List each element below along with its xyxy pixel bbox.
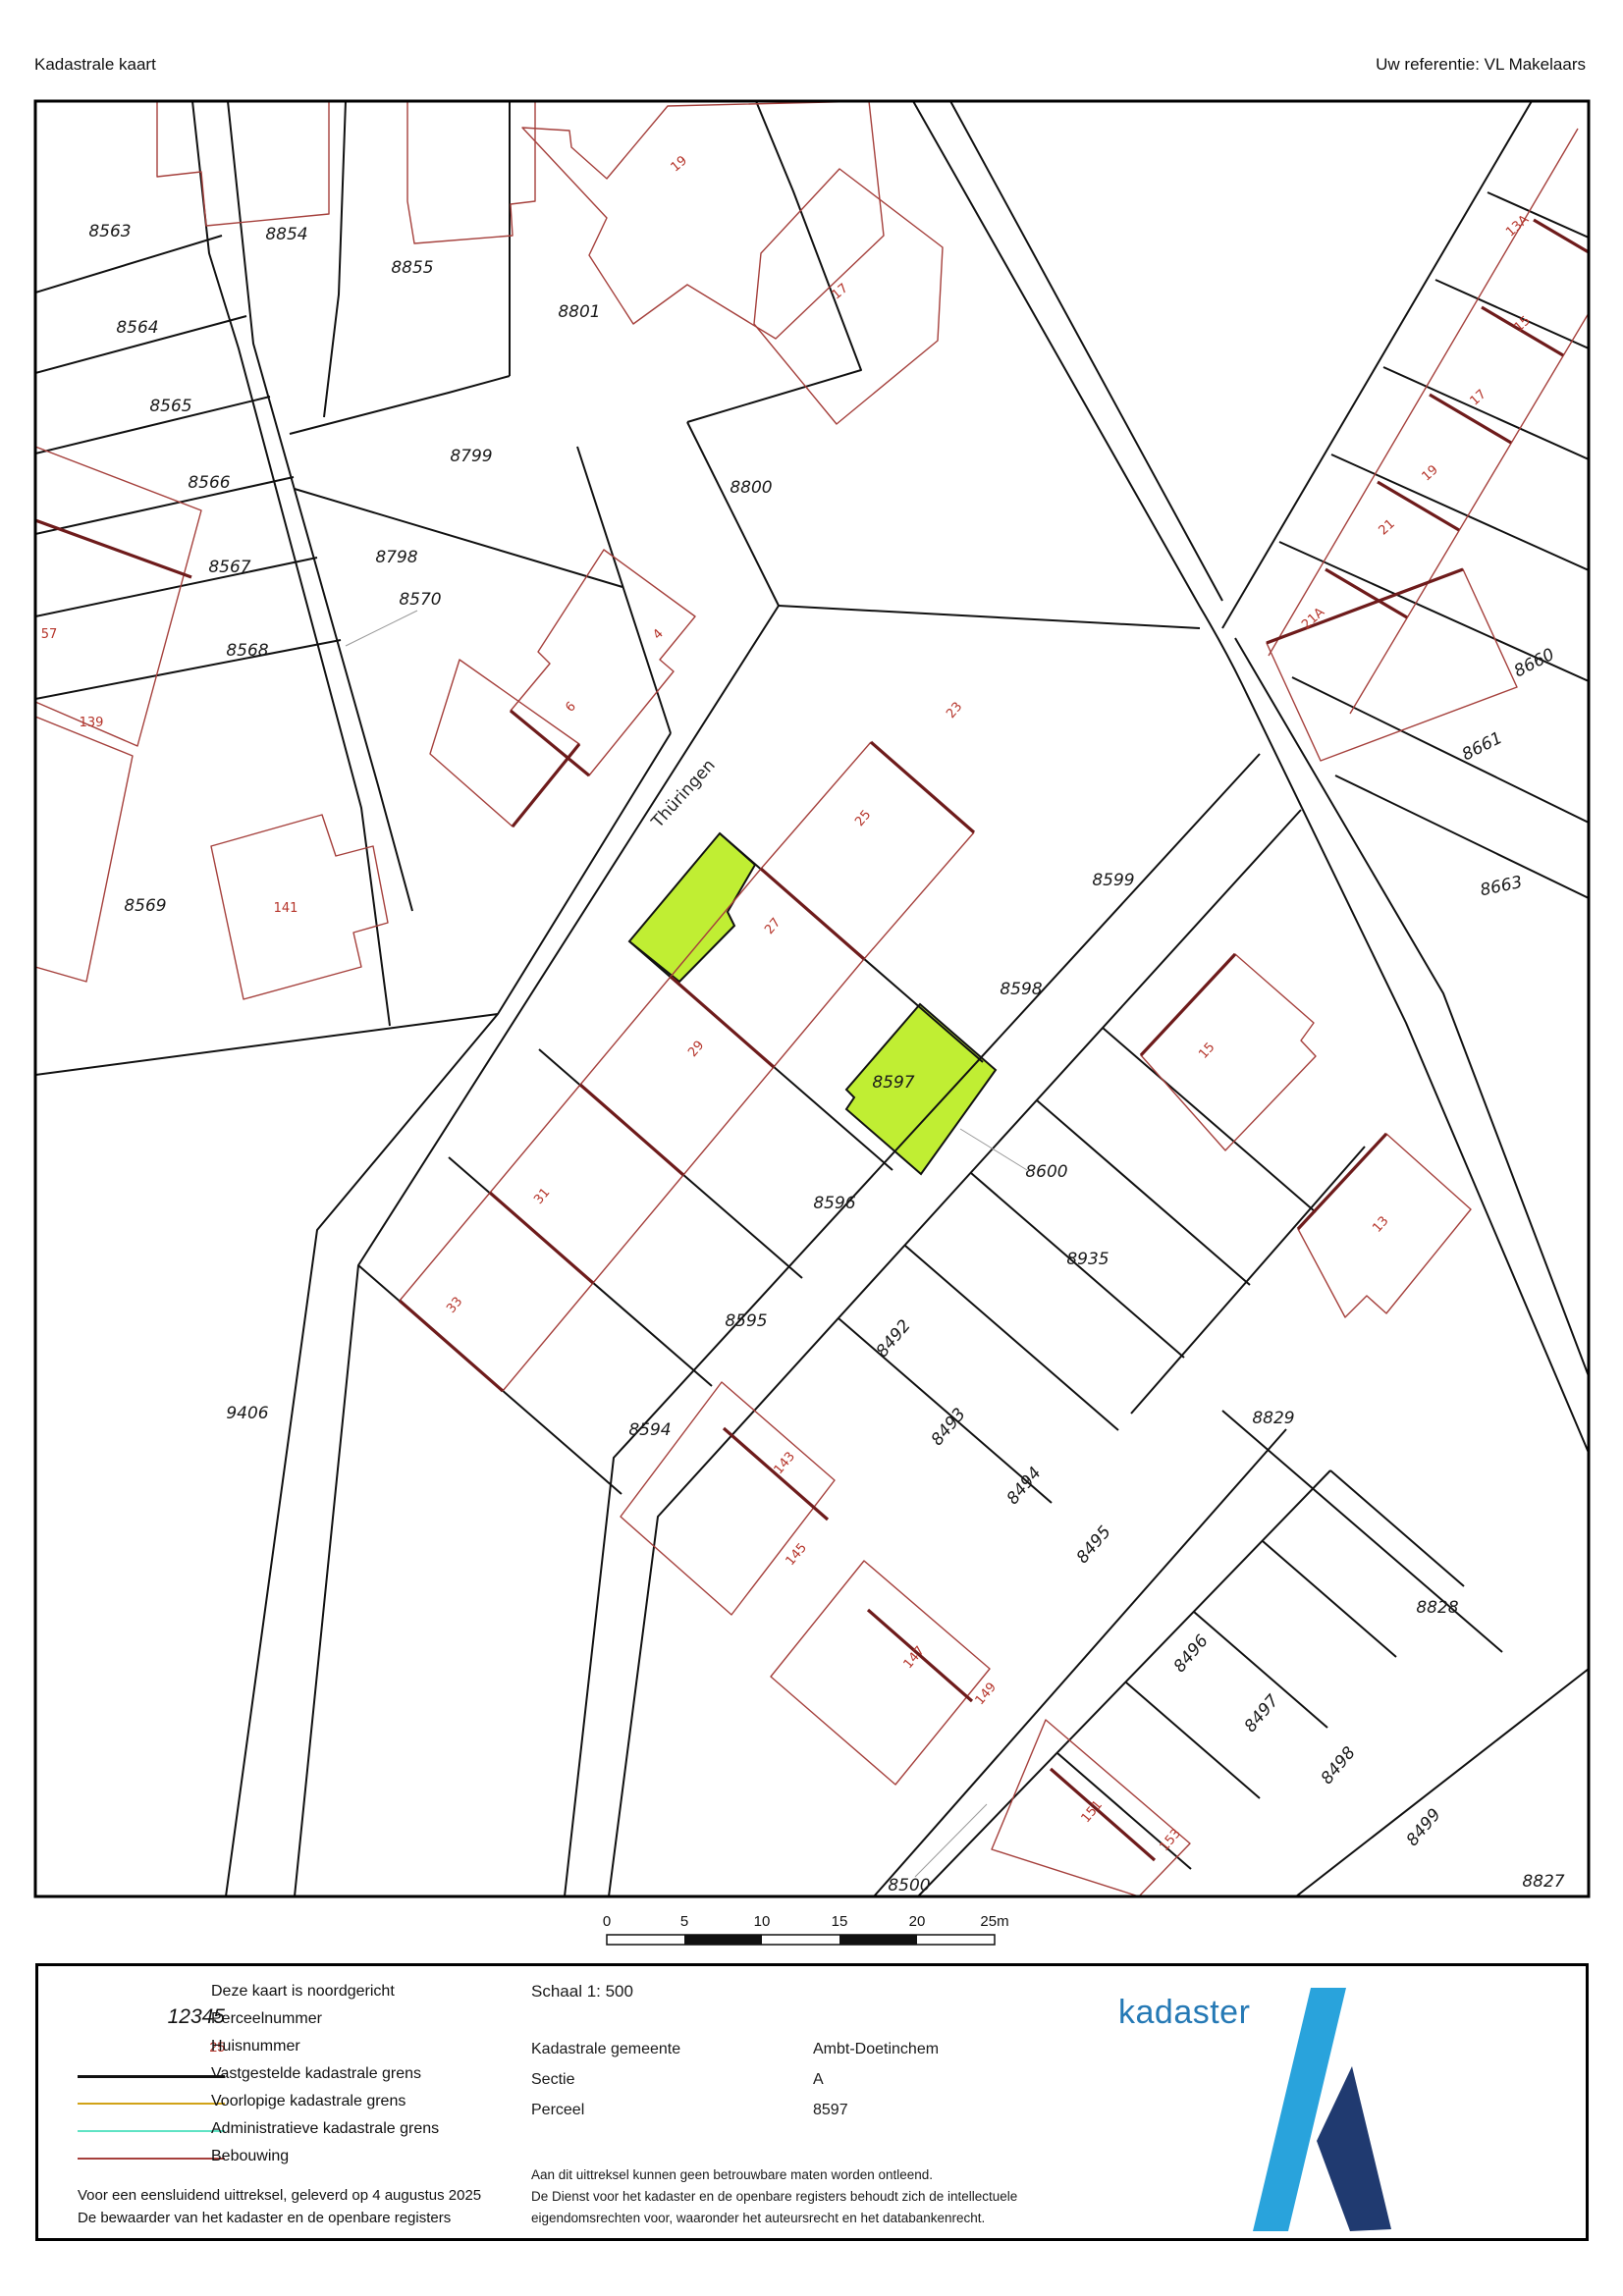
house-number-label: 141 bbox=[274, 901, 298, 916]
parcel-number-label: 8600 bbox=[1025, 1162, 1067, 1182]
legend-label: Deze kaart is noordgericht bbox=[211, 1983, 395, 2001]
highlighted-parcel-8597[interactable] bbox=[629, 833, 996, 1174]
house-number-label: 153 bbox=[1158, 1826, 1184, 1854]
legend-line-sample bbox=[78, 2075, 225, 2078]
legend-row: Bebouwing bbox=[38, 2145, 588, 2172]
legend-row: Vastgestelde kadastrale grens bbox=[38, 2062, 588, 2090]
parcel-number-label: 8598 bbox=[1000, 980, 1042, 999]
parcel-number-label: 8599 bbox=[1092, 871, 1134, 890]
house-number-label: 23 bbox=[944, 700, 965, 721]
cadastral-map-page: Kadastrale kaart Uw referentie: VL Makel… bbox=[0, 0, 1623, 2296]
legend-label: Voorlopige kadastrale grens bbox=[211, 2093, 406, 2110]
house-number-label: 147 bbox=[901, 1643, 928, 1672]
disclaimer-line: eigendomsrechten voor, waaronder het aut… bbox=[531, 2208, 1017, 2229]
parcel-number-label: 8828 bbox=[1416, 1598, 1458, 1618]
scale-tick-label: 25m bbox=[980, 1913, 1008, 1930]
house-number-label: 6 bbox=[563, 699, 578, 715]
parcel-number-label: 8497 bbox=[1241, 1691, 1283, 1736]
scale-label: Schaal 1: 500 bbox=[531, 1982, 633, 2002]
parcel-number-label: 8829 bbox=[1252, 1409, 1294, 1428]
house-number-label: 15 bbox=[1196, 1040, 1217, 1061]
legend-row: Administratieve kadastrale grens bbox=[38, 2117, 588, 2145]
kadaster-logo-icon bbox=[1234, 1984, 1406, 2234]
parcel-number-label: 8596 bbox=[813, 1194, 855, 1213]
legend-line-sample bbox=[78, 2158, 225, 2160]
house-number-label: 13A bbox=[1503, 212, 1532, 240]
delivery-line-2: De bewaarder van het kadaster en de open… bbox=[78, 2207, 481, 2229]
house-number-label: 33 bbox=[444, 1295, 465, 1316]
legend-row: Voorlopige kadastrale grens bbox=[38, 2090, 588, 2117]
detail-label-perceel: Perceel bbox=[531, 2102, 584, 2119]
parcel-number-label: 8594 bbox=[628, 1420, 671, 1440]
house-number-label: 31 bbox=[531, 1186, 553, 1207]
kadaster-logo-text: kadaster bbox=[1118, 1994, 1250, 2032]
house-number-label: 19 bbox=[669, 153, 690, 175]
scale-tick-label: 15 bbox=[832, 1913, 848, 1930]
parcel-number-label: 8827 bbox=[1522, 1872, 1564, 1892]
parcel-number-label: 8661 bbox=[1459, 728, 1506, 765]
parcel-number-label: 8492 bbox=[873, 1316, 915, 1362]
legend-line-sample bbox=[78, 2130, 225, 2132]
detail-value-sectie: A bbox=[813, 2071, 824, 2089]
legend-label: Vastgestelde kadastrale grens bbox=[211, 2065, 421, 2083]
parcel-number-label: 8500 bbox=[888, 1876, 930, 1896]
extract-details: Schaal 1: 500 Kadastrale gemeente Ambt-D… bbox=[531, 1966, 1081, 2238]
parcel-number-label: 8597 bbox=[872, 1073, 914, 1093]
legend-sample-house: 25 bbox=[78, 2039, 225, 2055]
legend-row: 25Huisnummer bbox=[38, 2035, 588, 2062]
house-number-label: 21 bbox=[1376, 516, 1397, 538]
detail-label-sectie: Sectie bbox=[531, 2071, 574, 2089]
parcel-number-label: 8564 bbox=[116, 318, 158, 338]
delivery-line-1: Voor een eensluidend uittreksel, gelever… bbox=[78, 2184, 481, 2207]
scale-tick-label: 0 bbox=[603, 1913, 611, 1930]
parcel-number-label: 8496 bbox=[1170, 1631, 1213, 1677]
legend-label: Huisnummer bbox=[211, 2038, 300, 2056]
legend-rows: Deze kaart is noordgericht12345Perceelnu… bbox=[38, 1980, 588, 2176]
legend-sample-parcel: 12345 bbox=[78, 2005, 225, 2029]
cadastral-map[interactable]: 8563885488558801880087998798857085648565… bbox=[0, 0, 1623, 2296]
parcel-number-label: 8663 bbox=[1479, 873, 1524, 901]
house-number-label: 29 bbox=[685, 1039, 707, 1060]
parcel-number-label: 8854 bbox=[265, 225, 307, 244]
house-number-label: 13 bbox=[1370, 1213, 1391, 1235]
parcel-number-label: 8498 bbox=[1318, 1743, 1360, 1789]
house-number-label: 139 bbox=[80, 716, 104, 730]
legend-row: Deze kaart is noordgericht bbox=[38, 1980, 588, 2007]
disclaimer: Aan dit uittreksel kunnen geen betrouwba… bbox=[531, 2164, 1017, 2229]
house-number-label: 27 bbox=[762, 916, 784, 937]
delivery-note: Voor een eensluidend uittreksel, gelever… bbox=[78, 2184, 481, 2229]
parcel-number-label: 8855 bbox=[391, 258, 433, 278]
house-number-label: 151 bbox=[1079, 1797, 1106, 1826]
map-frame bbox=[35, 101, 1589, 1896]
parcel-number-label: 8499 bbox=[1403, 1805, 1445, 1850]
parcel-number-label: 9406 bbox=[226, 1404, 268, 1423]
house-number-label: 4 bbox=[650, 626, 666, 642]
parcel-number-label: 8798 bbox=[375, 548, 417, 567]
legend-box: Deze kaart is noordgericht12345Perceelnu… bbox=[35, 1963, 1589, 2241]
legend-row: 12345Perceelnummer bbox=[38, 2007, 588, 2035]
parcel-number-label: 8935 bbox=[1066, 1250, 1109, 1269]
parcel-number-label: 8801 bbox=[558, 302, 600, 322]
parcel-number-label: 8565 bbox=[149, 397, 191, 416]
parcel-number-label: 8495 bbox=[1073, 1522, 1115, 1568]
legend-label: Perceelnummer bbox=[211, 2010, 322, 2028]
disclaimer-line: Aan dit uittreksel kunnen geen betrouwba… bbox=[531, 2164, 1017, 2186]
legend-label: Administratieve kadastrale grens bbox=[211, 2120, 439, 2138]
parcel-boundaries bbox=[35, 101, 1589, 1896]
parcel-number-label: 8494 bbox=[1003, 1464, 1046, 1509]
scale-tick-label: 10 bbox=[754, 1913, 771, 1930]
house-number-label: 25 bbox=[852, 808, 874, 829]
parcel-number-label: 8567 bbox=[208, 558, 250, 577]
parcel-number-label: 8799 bbox=[450, 447, 492, 466]
parcel-number-label: 8800 bbox=[730, 478, 772, 498]
legend-label: Bebouwing bbox=[211, 2148, 289, 2165]
detail-value-perceel: 8597 bbox=[813, 2102, 848, 2119]
parcel-number-label: 8569 bbox=[124, 896, 166, 916]
parcel-number-label: 8570 bbox=[399, 590, 441, 610]
detail-value-gemeente: Ambt-Doetinchem bbox=[813, 2041, 939, 2058]
legend-line-sample bbox=[78, 2103, 225, 2105]
house-number-label: 19 bbox=[1419, 462, 1440, 484]
parcel-number-label: 8563 bbox=[88, 222, 131, 241]
house-number-label: 145 bbox=[784, 1540, 810, 1569]
scale-bar: 0510152025m bbox=[603, 1913, 1009, 1945]
parcel-number-label: 8595 bbox=[725, 1311, 767, 1331]
buildings bbox=[35, 101, 1589, 1896]
house-number-label: 57 bbox=[41, 627, 58, 642]
house-number-label: 15 bbox=[1511, 313, 1533, 335]
parcel-number-label: 8566 bbox=[188, 473, 230, 493]
scale-tick-label: 20 bbox=[909, 1913, 926, 1930]
parcel-number-label: 8568 bbox=[226, 641, 268, 661]
detail-label-gemeente: Kadastrale gemeente bbox=[531, 2041, 680, 2058]
disclaimer-line: De Dienst voor het kadaster en de openba… bbox=[531, 2186, 1017, 2208]
scale-tick-label: 5 bbox=[680, 1913, 688, 1930]
